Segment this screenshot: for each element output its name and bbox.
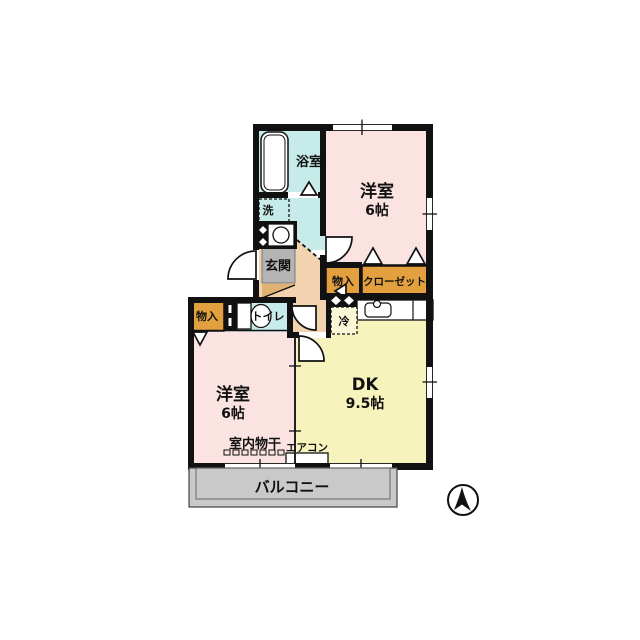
folding-mark-1 xyxy=(229,305,232,313)
aircon-label: エアコン xyxy=(286,442,328,454)
kitchen-faucet-icon xyxy=(374,301,381,308)
floor-plan-svg: 浴室 洗 玄関 洋室 6帖 物入 クローゼット 冷 トイレ 物入 洋室 6帖 D… xyxy=(0,0,640,640)
bathtub-icon xyxy=(261,132,288,193)
storage-bottom-label: 物入 xyxy=(196,309,218,323)
storage-top-label: 物入 xyxy=(332,274,354,288)
closet-label: クローゼット xyxy=(363,275,426,288)
storage-bottom-folding-door xyxy=(224,300,237,331)
wall-closet-divider xyxy=(359,266,362,294)
entrance-door-arc xyxy=(228,251,256,279)
compass xyxy=(448,485,478,515)
entrance-label: 玄関 xyxy=(265,258,291,274)
wall-hall-east xyxy=(320,255,326,299)
bedroom-bottom-size: 6帖 xyxy=(221,405,245,422)
wall-lower-section-top xyxy=(188,297,296,303)
washbasin-sink-icon xyxy=(273,227,289,243)
aircon-box xyxy=(286,453,328,464)
laundry-label: 洗 xyxy=(263,203,274,217)
fridge-label: 冷 xyxy=(339,314,350,328)
balcony-label: バルコニー xyxy=(255,478,330,496)
bedroom-bottom-label: 洋室 xyxy=(216,384,250,405)
toilet-tank-icon xyxy=(237,303,251,329)
wall-left-lower xyxy=(188,297,194,470)
bedroom-top-size: 6帖 xyxy=(365,202,389,219)
dk-size: 9.5帖 xyxy=(346,395,385,412)
indoor-drying-label: 室内物干 xyxy=(229,436,281,452)
toilet-label: トイレ xyxy=(252,310,285,323)
bathroom-label: 浴室 xyxy=(296,154,322,170)
bedroom-top-label: 洋室 xyxy=(360,181,394,202)
folding-mark-2 xyxy=(229,318,232,326)
wall-bath-column xyxy=(320,124,326,236)
floor-plan-canvas: 浴室 洗 玄関 洋室 6帖 物入 クローゼット 冷 トイレ 物入 洋室 6帖 D… xyxy=(0,0,640,640)
dk-label: DK xyxy=(352,375,380,394)
